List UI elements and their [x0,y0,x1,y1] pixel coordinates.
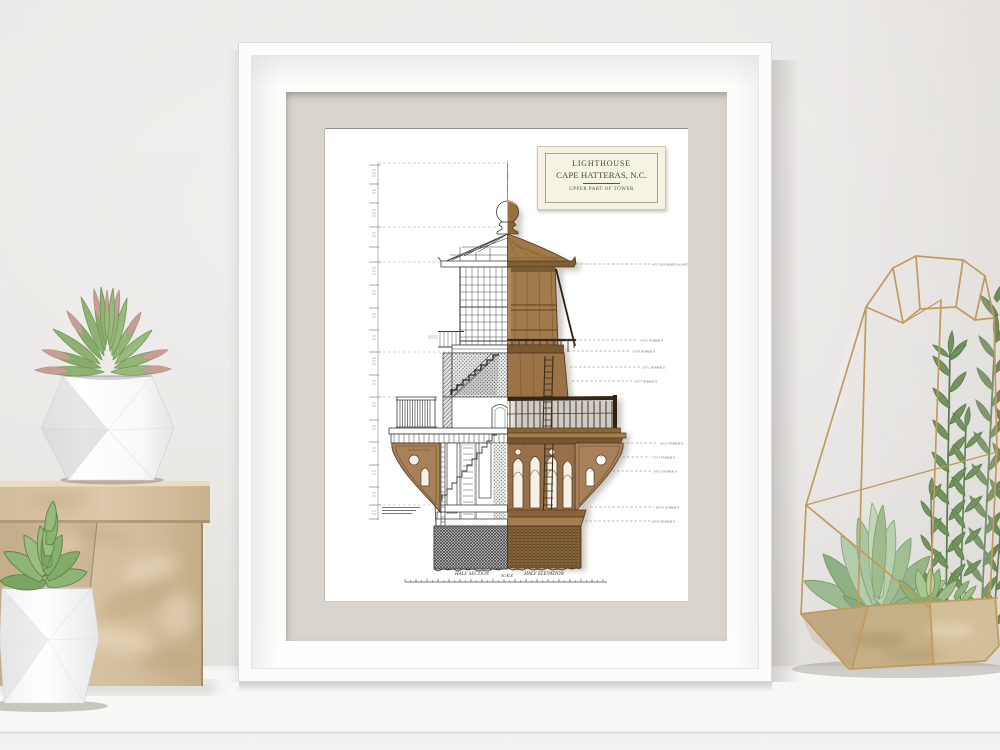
svg-text:8 FT 6 IN RADIUS: 8 FT 6 IN RADIUS [656,506,679,510]
svg-text:HALF ELEVATION: HALF ELEVATION [523,572,564,577]
svg-text:6 FT 3 IN RADIUS: 6 FT 3 IN RADIUS [660,442,683,446]
svg-text:4 FT 10 IN RADIUS of LANTERN: 4 FT 10 IN RADIUS of LANTERN [652,263,688,267]
svg-text:5 FT 7 IN RADIUS: 5 FT 7 IN RADIUS [634,380,657,384]
svg-text:8 FT 6 IN RADIUS: 8 FT 6 IN RADIUS [652,520,675,524]
svg-text:5 FT 2 IN RADIUS: 5 FT 2 IN RADIUS [642,366,665,370]
svg-text:SCALE: SCALE [501,573,513,578]
svg-text:8 FT 1 IN RADIUS: 8 FT 1 IN RADIUS [654,470,677,474]
svg-text:4 FT 2 IN RADIUS: 4 FT 2 IN RADIUS [640,339,663,343]
svg-text:HALF SECTION: HALF SECTION [454,572,490,577]
svg-text:7 FT 3 IN RADIUS: 7 FT 3 IN RADIUS [652,456,675,460]
svg-text:5 FT 8 IN RADIUS: 5 FT 8 IN RADIUS [632,350,655,354]
